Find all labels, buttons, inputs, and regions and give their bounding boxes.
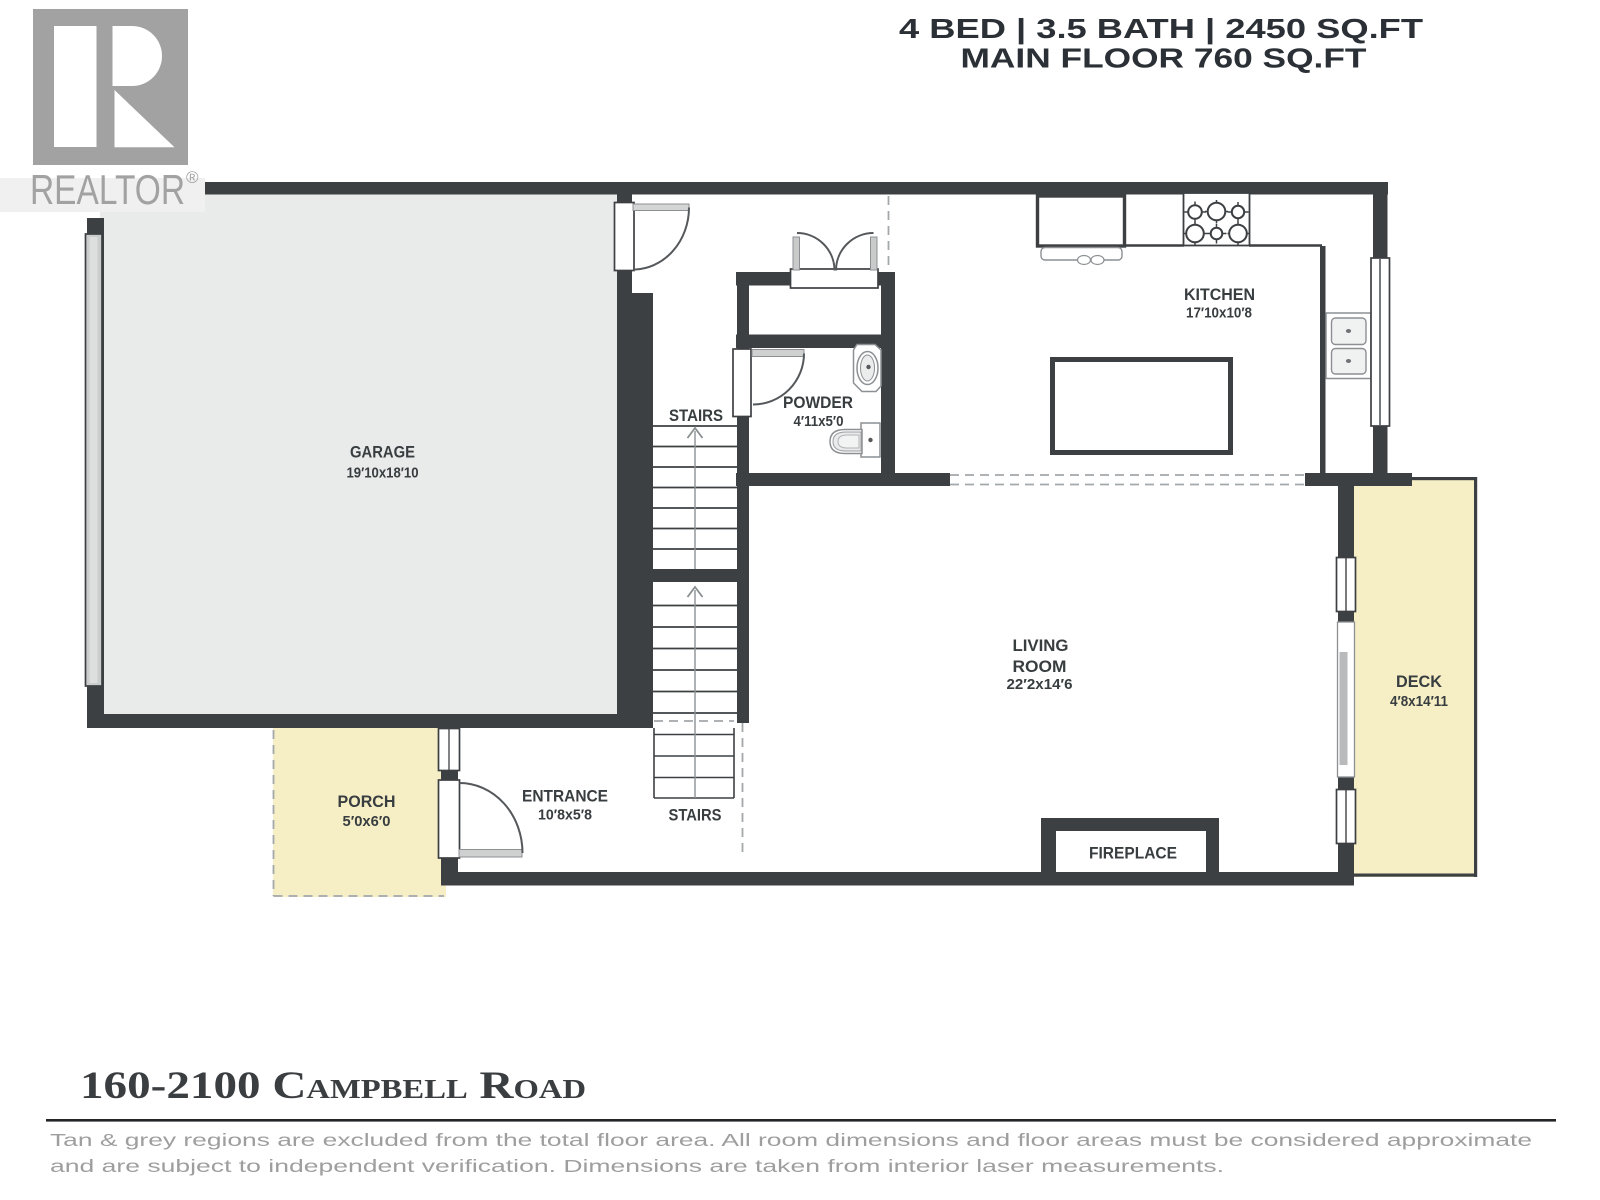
svg-text:REALTOR: REALTOR <box>30 166 185 213</box>
svg-text:17′10x10′8: 17′10x10′8 <box>1186 305 1252 322</box>
svg-text:PORCH: PORCH <box>338 792 396 811</box>
svg-text:ENTRANCE: ENTRANCE <box>522 787 608 806</box>
svg-text:10′8x5′8: 10′8x5′8 <box>538 807 592 824</box>
svg-text:ROOM: ROOM <box>1013 657 1067 676</box>
svg-text:LIVING: LIVING <box>1013 636 1069 655</box>
svg-text:4′8x14′11: 4′8x14′11 <box>1390 693 1448 710</box>
svg-text:and are subject to independent: and are subject to independent verificat… <box>50 1156 1224 1176</box>
svg-text:STAIRS: STAIRS <box>669 406 723 425</box>
svg-text:22′2x14′6: 22′2x14′6 <box>1007 676 1073 693</box>
svg-text:®: ® <box>186 168 199 187</box>
svg-text:DECK: DECK <box>1396 672 1443 691</box>
svg-text:POWDER: POWDER <box>783 393 853 412</box>
svg-text:FIREPLACE: FIREPLACE <box>1089 844 1177 863</box>
svg-text:5′0x6′0: 5′0x6′0 <box>343 813 391 830</box>
svg-text:Tan & grey regions are exclude: Tan & grey regions are excluded from the… <box>50 1130 1532 1150</box>
svg-text:4 BED | 3.5 BATH | 2450 SQ.FT: 4 BED | 3.5 BATH | 2450 SQ.FT <box>899 13 1423 44</box>
svg-text:19′10x18′10: 19′10x18′10 <box>347 465 419 482</box>
svg-text:KITCHEN: KITCHEN <box>1184 285 1255 304</box>
svg-text:GARAGE: GARAGE <box>350 443 415 462</box>
svg-text:160-2100 Campbell Road: 160-2100 Campbell Road <box>80 1064 586 1107</box>
svg-text:4′11x5′0: 4′11x5′0 <box>794 413 844 430</box>
svg-text:STAIRS: STAIRS <box>669 806 722 825</box>
svg-text:MAIN FLOOR 760 SQ.FT: MAIN FLOOR 760 SQ.FT <box>961 43 1367 74</box>
